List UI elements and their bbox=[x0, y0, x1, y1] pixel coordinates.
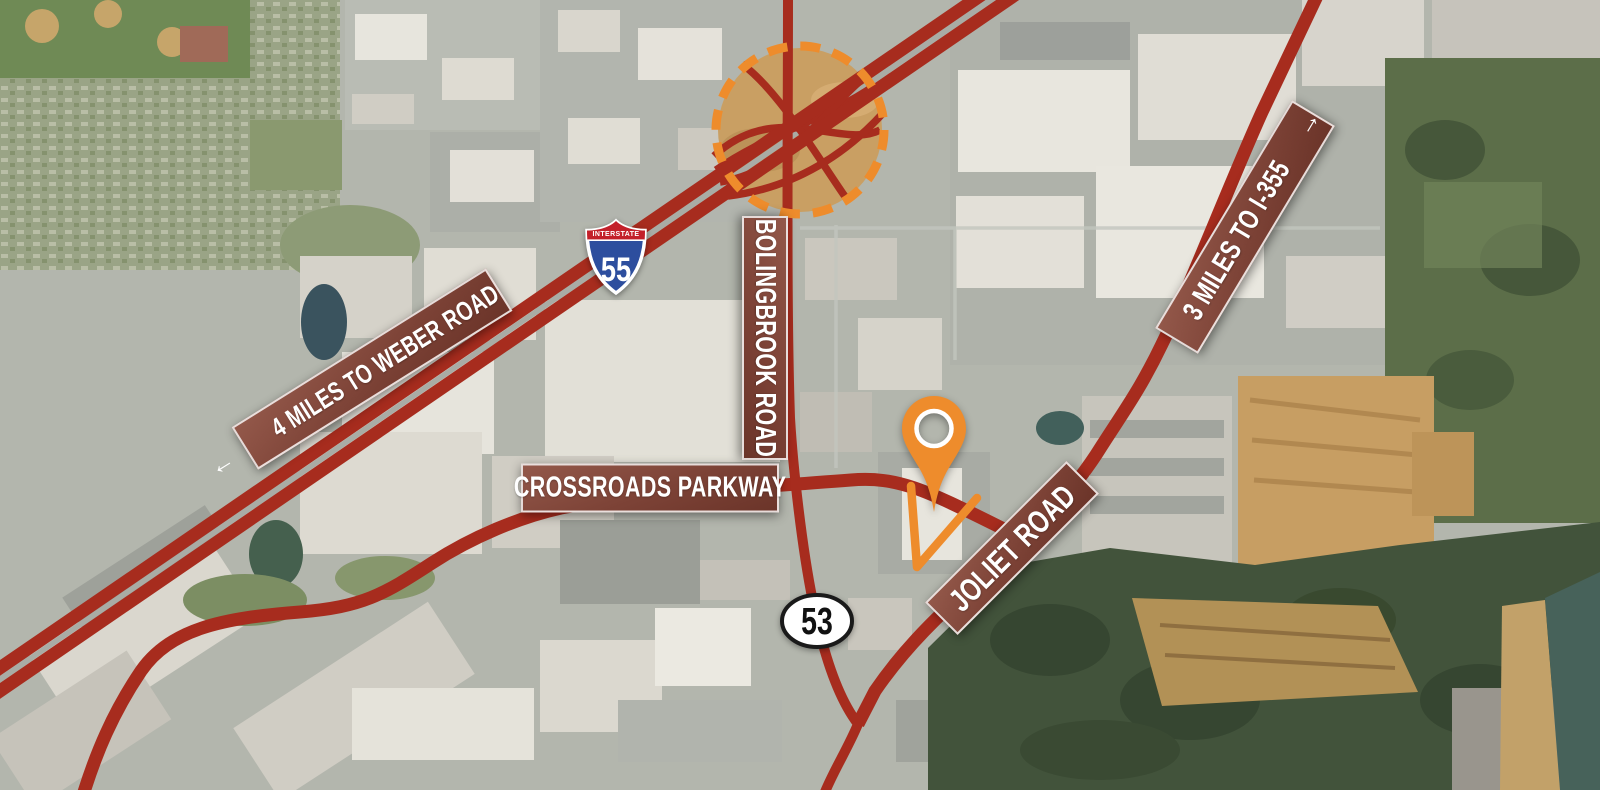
pin-hole-ring bbox=[917, 411, 952, 446]
pin-body bbox=[902, 396, 966, 512]
satellite-base-layer bbox=[0, 0, 1600, 790]
label-text: BOLINGBROOK ROAD bbox=[749, 219, 782, 457]
route-number-text: 53 bbox=[801, 601, 833, 643]
shield-band-divider bbox=[584, 239, 648, 241]
route-53-shield-icon: 53 bbox=[777, 591, 857, 651]
label-crossroads-parkway: CROSSROADS PARKWAY bbox=[521, 464, 779, 513]
interstate-number-text: 55 bbox=[601, 250, 631, 289]
location-pin-icon bbox=[900, 394, 968, 518]
label-bolingbrook-road: BOLINGBROOK ROAD bbox=[742, 216, 788, 460]
interstate-55-shield-icon: INTERSTATE 55 bbox=[584, 218, 648, 296]
interstate-band-text: INTERSTATE bbox=[593, 231, 640, 238]
label-text: CROSSROADS PARKWAY bbox=[514, 472, 787, 505]
aerial-site-map: ← 4 MILES TO WEBER ROAD 3 MILES TO I-355… bbox=[0, 0, 1600, 790]
